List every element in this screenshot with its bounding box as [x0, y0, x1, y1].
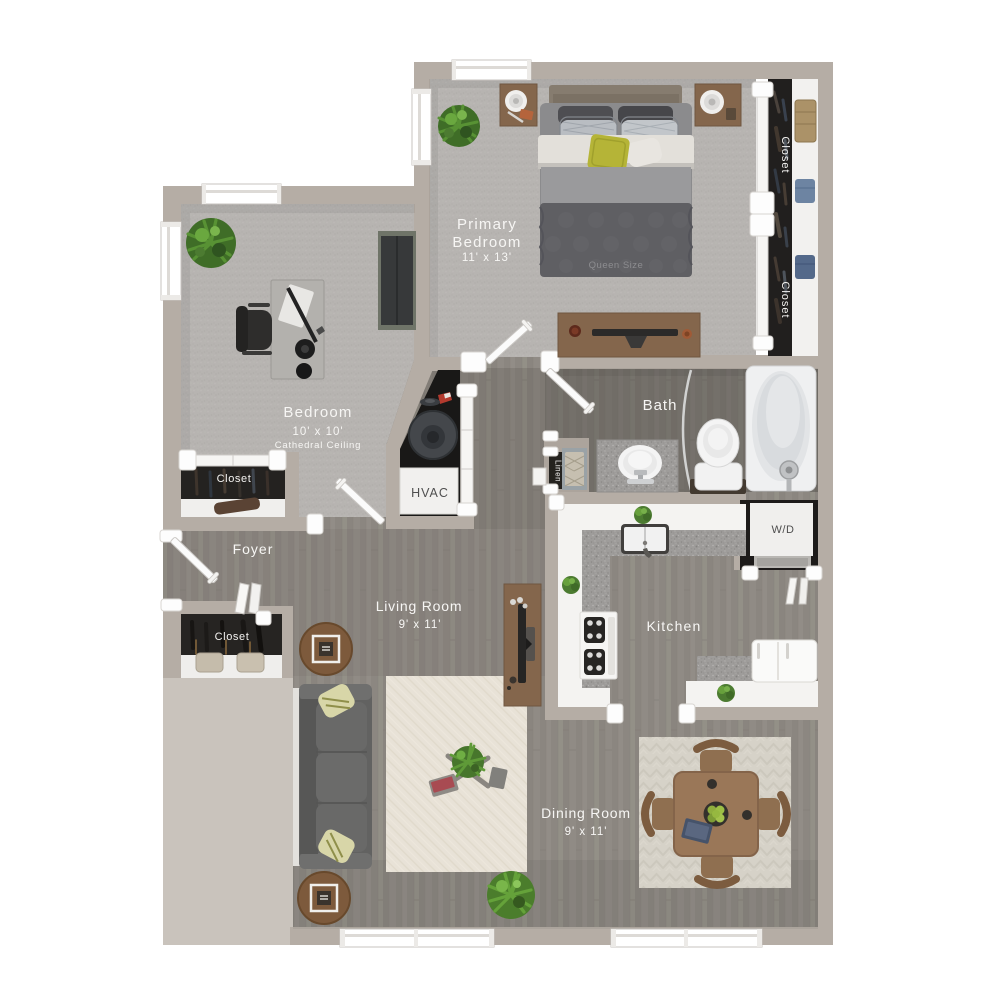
svg-text:Closet: Closet [215, 631, 250, 643]
svg-text:Bedroom: Bedroom [452, 234, 521, 251]
svg-text:HVAC: HVAC [411, 486, 449, 500]
svg-text:10' x 10': 10' x 10' [292, 426, 343, 438]
svg-text:Kitchen: Kitchen [646, 618, 701, 634]
svg-text:Cathedral Ceiling: Cathedral Ceiling [275, 440, 361, 451]
svg-text:Bedroom: Bedroom [283, 404, 352, 421]
svg-text:Primary: Primary [457, 216, 517, 233]
svg-text:W/D: W/D [772, 524, 795, 536]
svg-text:Living Room: Living Room [376, 598, 463, 614]
svg-text:Queen Size: Queen Size [589, 260, 644, 271]
svg-text:9' x 11': 9' x 11' [399, 619, 442, 631]
svg-text:Dining Room: Dining Room [541, 805, 631, 821]
svg-text:9' x 11': 9' x 11' [565, 826, 608, 838]
svg-text:Bath: Bath [643, 397, 678, 414]
svg-text:Foyer: Foyer [233, 541, 274, 557]
svg-text:Closet: Closet [779, 281, 791, 318]
svg-text:Closet: Closet [779, 136, 791, 173]
svg-text:Linen: Linen [554, 460, 563, 482]
svg-text:11' x 13': 11' x 13' [462, 252, 512, 264]
svg-text:Closet: Closet [217, 473, 252, 485]
